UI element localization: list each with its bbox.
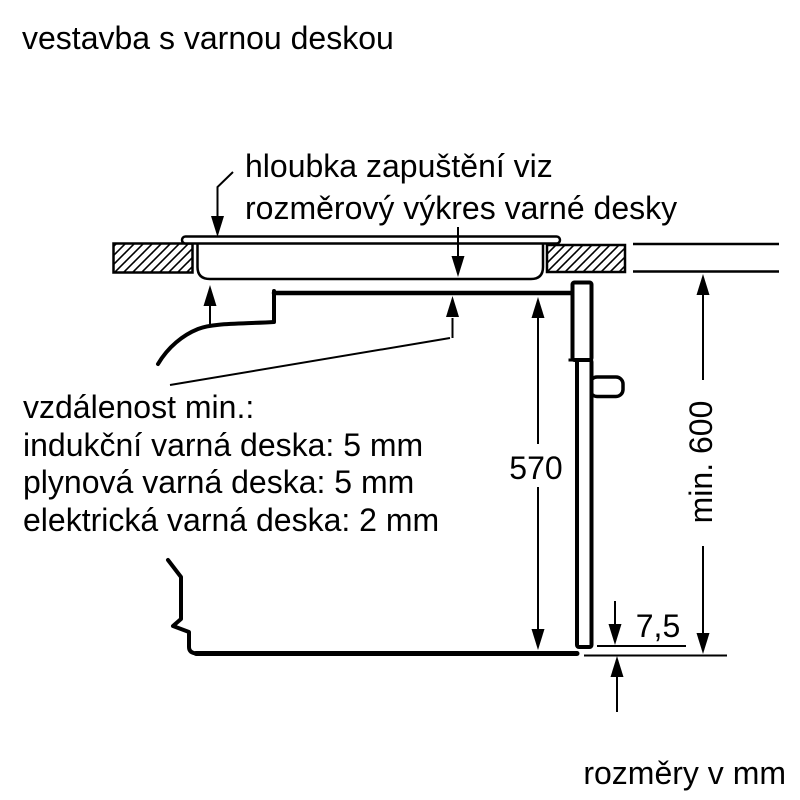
bottom-gap-lines [584,646,727,656]
worktop-left-hatched-section [114,244,193,273]
distance-leader-arrow-left [204,285,217,306]
oven-left-break-bottom [168,560,198,654]
units-note: rozměry v mm [583,755,786,791]
oven-door [577,360,592,647]
recess-leader-arrow-left [211,216,224,237]
dim-600-arrow-up [697,274,710,295]
oven-knob [590,377,623,397]
installation-drawing-page: vestavba s varnou deskou hloubka zapuště… [0,0,800,800]
dim-75-arrow-down [609,624,622,645]
dim-75-arrow-up [611,656,624,677]
oven-front [569,283,624,648]
recess-note-line2: rozměrový výkres varné desky [245,190,677,226]
dim-570-arrow-down [532,629,545,650]
min-distance-leader [170,285,459,385]
oven-control-panel [573,283,592,361]
installation-diagram: vestavba s varnou deskou hloubka zapuště… [0,0,800,800]
worktop-right-hatched-section [547,245,625,272]
distance-leader-line [170,318,453,385]
min-distance-note-line4: elektrická varná deska: 2 mm [23,502,439,538]
min-distance-note-line2: indukční varná deska: 5 mm [23,427,423,463]
min-distance-note-line3: plynová varná deska: 5 mm [23,464,414,500]
dim-570-arrow-up [532,297,545,318]
min-distance-note-line1: vzdálenost min.: [23,389,254,425]
dim-600-arrow-down [697,633,710,654]
recess-note-line1: hloubka zapuštění viz [245,148,553,184]
dimension-min-600-label: min. 600 [683,401,719,524]
dimension-570-label: 570 [509,450,562,486]
hob [182,237,560,280]
recess-leader-line [218,172,234,218]
distance-leader-arrow-right [446,296,459,317]
hob-body-tray [198,239,544,279]
page-title: vestavba s varnou deskou [22,20,394,56]
hob-flange [182,237,560,244]
dimension-7-5-label: 7,5 [636,608,680,644]
oven-left-break-top [158,291,274,364]
